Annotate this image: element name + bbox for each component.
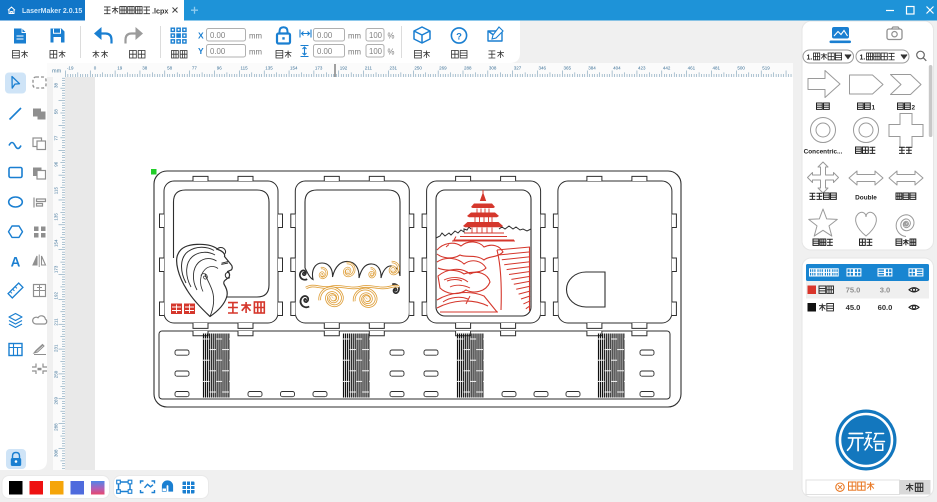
svg-text:0.00: 0.00 [210,31,226,40]
svg-text:77: 77 [54,135,59,141]
svg-text:115: 115 [241,66,249,71]
svg-text:2: 2 [912,104,916,111]
svg-text:60.0: 60.0 [878,303,893,312]
svg-text:211: 211 [54,318,59,326]
svg-text:288: 288 [464,66,472,71]
svg-text:250: 250 [54,370,59,378]
svg-text:Double: Double [855,194,877,201]
svg-text:365: 365 [563,66,571,71]
svg-text:173: 173 [54,265,59,273]
svg-text:%: % [388,32,395,41]
svg-text:115: 115 [54,187,59,195]
svg-text:192: 192 [340,66,348,71]
svg-text:519: 519 [762,66,770,71]
svg-text:.lcpx: .lcpx [152,7,168,16]
svg-text:77: 77 [192,66,198,71]
svg-text:Concentric...: Concentric... [804,148,843,155]
svg-text:154: 154 [54,239,59,247]
svg-text:1: 1 [872,104,876,111]
svg-text:1.: 1. [860,55,866,62]
svg-text:423: 423 [638,66,646,71]
svg-text:mm: mm [52,69,62,75]
svg-text:327: 327 [514,66,522,71]
svg-text:96: 96 [54,161,59,167]
svg-text:269: 269 [54,397,59,405]
svg-text:288: 288 [54,423,59,431]
svg-text:231: 231 [389,66,397,71]
svg-text:X: X [198,31,204,41]
svg-text:442: 442 [663,66,671,71]
svg-text:LaserMaker 2.0.15: LaserMaker 2.0.15 [22,8,82,15]
svg-text:3.0: 3.0 [880,286,891,295]
svg-text:Y: Y [198,46,204,56]
svg-text:135: 135 [54,213,59,221]
svg-text:308: 308 [54,449,59,457]
svg-text:500: 500 [737,66,745,71]
svg-text:346: 346 [539,66,547,71]
svg-text:19: 19 [117,66,123,71]
svg-text:38: 38 [142,66,148,71]
svg-text:461: 461 [688,66,696,71]
svg-text:A: A [11,255,21,270]
svg-text:173: 173 [315,66,323,71]
svg-text:%: % [388,48,395,57]
svg-text:231: 231 [54,344,59,352]
svg-text:0.00: 0.00 [317,31,333,40]
svg-text:100: 100 [369,47,383,56]
svg-text:38: 38 [54,83,59,89]
svg-text:211: 211 [365,66,373,71]
svg-text:-19: -19 [67,66,74,71]
svg-text:0.00: 0.00 [210,47,226,56]
svg-text:308: 308 [489,66,497,71]
svg-text:?: ? [456,31,462,42]
svg-text:481: 481 [712,66,720,71]
svg-text:384: 384 [588,66,596,71]
svg-text:0.00: 0.00 [317,47,333,56]
svg-text:1.: 1. [807,55,813,62]
svg-text:mm: mm [348,32,361,41]
svg-text:96: 96 [217,66,223,71]
svg-text:135: 135 [265,66,273,71]
svg-text:45.0: 45.0 [846,303,861,312]
svg-text:75.0: 75.0 [846,286,861,295]
svg-text:404: 404 [613,66,621,71]
svg-text:58: 58 [167,66,173,71]
svg-text:mm: mm [249,48,262,57]
svg-text:192: 192 [54,291,59,299]
svg-text:100: 100 [369,31,383,40]
svg-text:mm: mm [249,32,262,41]
svg-text:58: 58 [54,109,59,115]
svg-text:269: 269 [439,66,447,71]
svg-text:mm: mm [348,48,361,57]
svg-text:154: 154 [290,66,298,71]
svg-text:250: 250 [414,66,422,71]
